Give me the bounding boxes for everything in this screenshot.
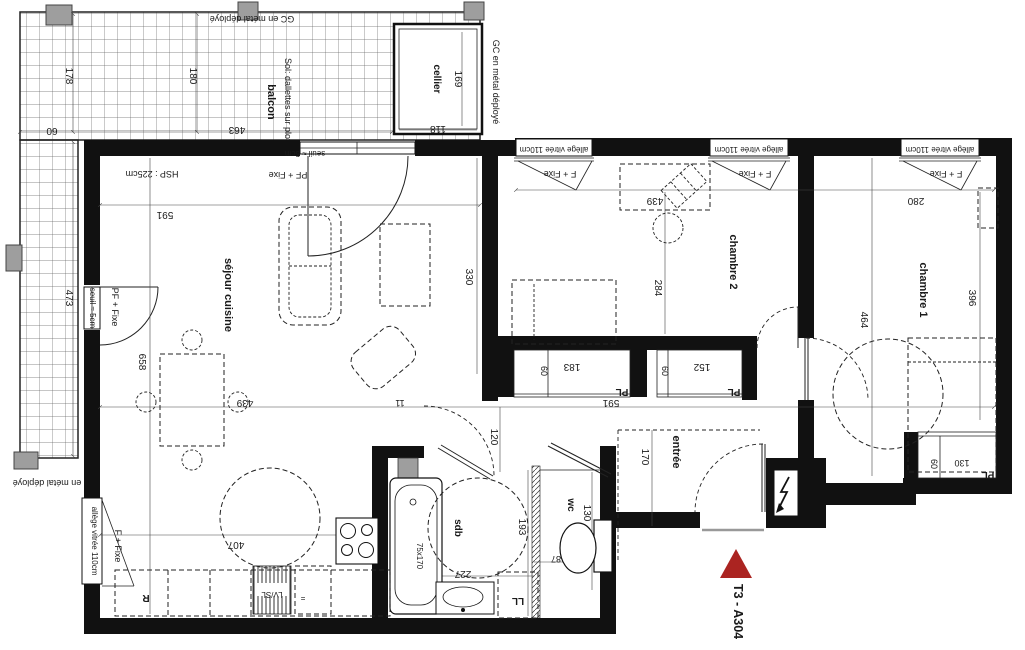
post: [14, 452, 38, 469]
sejour-left-window: allège vitrée 110cm F + Fixe: [82, 498, 134, 586]
window-allege: allège vitrée 110cm F + Fixe: [708, 139, 790, 190]
room-label-wc: wc: [565, 497, 576, 512]
dim-591: 591: [156, 209, 173, 220]
bathtub-size: 75x170: [415, 543, 424, 570]
electrical-panel: [774, 470, 798, 516]
dim-152: 152: [693, 361, 710, 372]
balcony-door-top: seuil ≈ 5cm PF + Fixe: [269, 142, 415, 256]
window-allege: allège vitrée 110cm F + Fixe: [514, 139, 594, 190]
chambre1: chambre 1: [833, 188, 998, 472]
balcony-floor-note: Sol: dallettes sur plots: [283, 58, 293, 147]
room-label-chambre2: chambre 2: [727, 234, 739, 289]
dim-60: 60: [539, 366, 549, 376]
floorplan-canvas: GC en métal déployé GC en métal déployé …: [0, 0, 1025, 650]
dim-180: 180: [187, 68, 198, 85]
room-label-cellier: cellier: [431, 65, 442, 94]
shelf-marks: [661, 164, 707, 209]
dim-169: 169: [452, 71, 463, 88]
kitchen-sink: =: [295, 566, 331, 614]
kitchen-counter: [115, 570, 390, 616]
dim-130-wc: 130: [581, 505, 592, 522]
sdb-wc-divider: [532, 466, 540, 618]
window-allege: allège vitrée 110cm F + Fixe: [899, 139, 981, 190]
window-allege-label: allège vitrée 110cm: [905, 145, 974, 154]
window-f-fixe: F + Fixe: [739, 169, 772, 179]
dim-193: 193: [516, 519, 527, 536]
pf-fixe-label: PF + Fixe: [269, 170, 308, 180]
sink-vanity: [436, 582, 494, 614]
balcony-rail-note-top: GC en métal déployé: [210, 14, 295, 24]
closet-3: 60 130 PL: [918, 432, 996, 480]
chair-chambre2: [653, 213, 683, 243]
closet-label: PL: [728, 386, 741, 397]
dim-170: 170: [639, 449, 650, 466]
seuil-label: seuil ≈ 5cm: [88, 288, 97, 329]
room-label-chambre1: chambre 1: [917, 262, 929, 317]
stove: [336, 518, 378, 564]
bedroom-windows: allège vitrée 110cm F + Fixe allège vitr…: [514, 139, 981, 190]
dimensions: 591 439 280 658 330 284 464 396 439 11 5…: [100, 158, 994, 616]
dim-178: 178: [63, 68, 74, 85]
window-f-fixe: F + Fixe: [930, 169, 963, 179]
window-allege-label: allège vitrée 110cm: [90, 507, 99, 576]
dim-11: 11: [395, 398, 404, 408]
closet-2: 60 152 PL: [657, 350, 742, 397]
washing-machine-label: LL: [512, 595, 524, 606]
bathroom-fixtures: 75x170 sdb LL wc: [390, 478, 612, 618]
sdb-turning-circle: [428, 478, 528, 578]
armchair: [346, 321, 420, 393]
post: [464, 2, 484, 20]
unit-label: T3 - A304: [731, 584, 745, 639]
sejour-turning-circle: [220, 468, 320, 568]
bed-chambre2: [512, 280, 616, 344]
dim-280: 280: [907, 195, 924, 206]
dishwasher: LV/SL: [253, 566, 291, 614]
room-label-sejour: séjour cuisine: [222, 258, 234, 332]
window-allege-label: allège vitrée 110cm: [519, 145, 588, 154]
floorplan-page: GC en métal déployé GC en métal déployé …: [0, 0, 1025, 650]
pf-fixe-label: PF + Fixe: [110, 288, 120, 327]
sink-mark: =: [300, 594, 305, 603]
room-label-balcon: balcon: [265, 84, 277, 120]
door-entry: [695, 444, 765, 530]
dining-table: [136, 330, 248, 470]
window-f-fixe: F + Fixe: [544, 169, 577, 179]
door-chambre2: [757, 307, 798, 348]
bathtub: 75x170: [390, 478, 442, 614]
closet-label: PL: [616, 386, 629, 397]
chambre2: chambre 2: [512, 164, 739, 344]
dim-118: 118: [430, 123, 446, 134]
dim-60: 60: [46, 125, 58, 136]
dim-87: 87: [551, 554, 561, 564]
chambre1-turning-circle: [833, 339, 943, 449]
dim-439: 439: [646, 195, 663, 206]
closet-label: PL: [982, 469, 995, 480]
door-sdb-sliding: [424, 406, 494, 479]
dim-473: 473: [63, 290, 74, 307]
post: [6, 245, 22, 271]
fridge-label: R: [142, 592, 150, 603]
room-label-sdb: sdb: [452, 519, 463, 537]
hsp-label: HSP : 225cm: [126, 169, 179, 179]
dim-591b: 591: [602, 397, 619, 408]
nightstand: [978, 188, 998, 228]
tv-stand: [380, 224, 430, 306]
dim-464: 464: [858, 312, 869, 329]
dim-439b: 439: [236, 397, 253, 408]
toilet: [560, 520, 612, 573]
dim-183: 183: [563, 361, 580, 372]
room-label-entree: entrée: [670, 435, 682, 468]
dim-463: 463: [228, 124, 245, 135]
unit-marker: T3 - A304: [720, 549, 752, 639]
dim-330: 330: [463, 269, 474, 286]
dim-60: 60: [660, 366, 670, 376]
dim-120: 120: [488, 429, 499, 446]
cellier-rail-note: GC en métal déployé: [491, 40, 501, 125]
kitchen: R LV/SL =: [115, 518, 390, 616]
north-triangle-icon: [720, 549, 752, 578]
cellier: cellier 169 118 GC en métal déployé: [394, 24, 501, 134]
bed-chambre1: [908, 338, 996, 472]
window-f-fixe: F + Fixe: [113, 530, 123, 563]
dim-658: 658: [136, 354, 147, 371]
post: [46, 5, 72, 25]
dim-130: 130: [954, 458, 969, 468]
window-allege-label: allège vitrée 110cm: [714, 145, 783, 154]
dim-284: 284: [652, 280, 663, 297]
closet-1: 60 183 PL: [514, 350, 630, 397]
seuil-label: seuil ≈ 5cm: [284, 149, 325, 158]
dishwasher-label: LV/SL: [261, 590, 283, 599]
dim-396: 396: [966, 290, 977, 307]
dim-60: 60: [929, 459, 939, 469]
